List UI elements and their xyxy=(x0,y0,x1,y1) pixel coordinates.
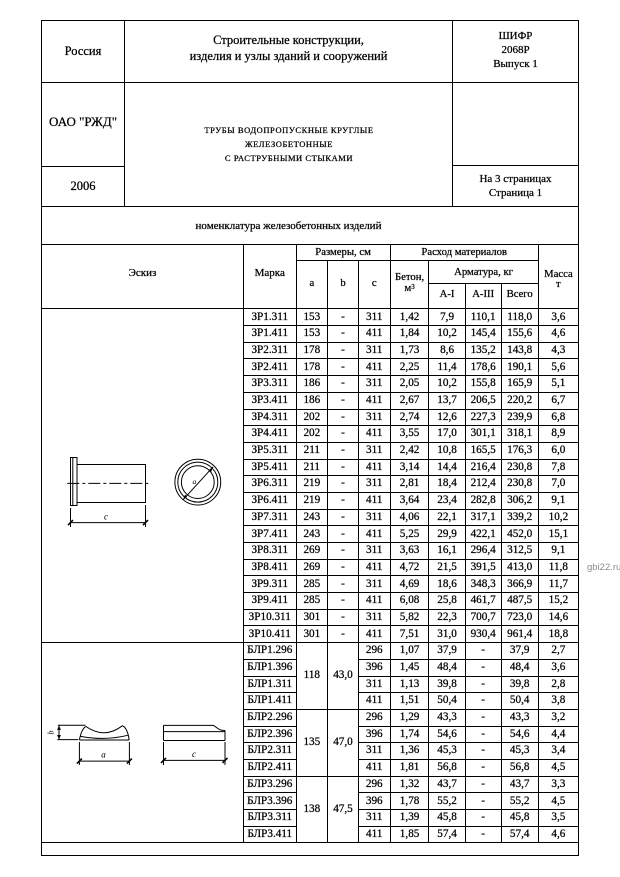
svg-text:b: b xyxy=(47,731,56,735)
svg-text:c: c xyxy=(192,749,196,759)
svg-text:a: a xyxy=(101,750,106,760)
svg-text:c: c xyxy=(104,512,108,522)
svg-text:a: a xyxy=(193,477,197,486)
